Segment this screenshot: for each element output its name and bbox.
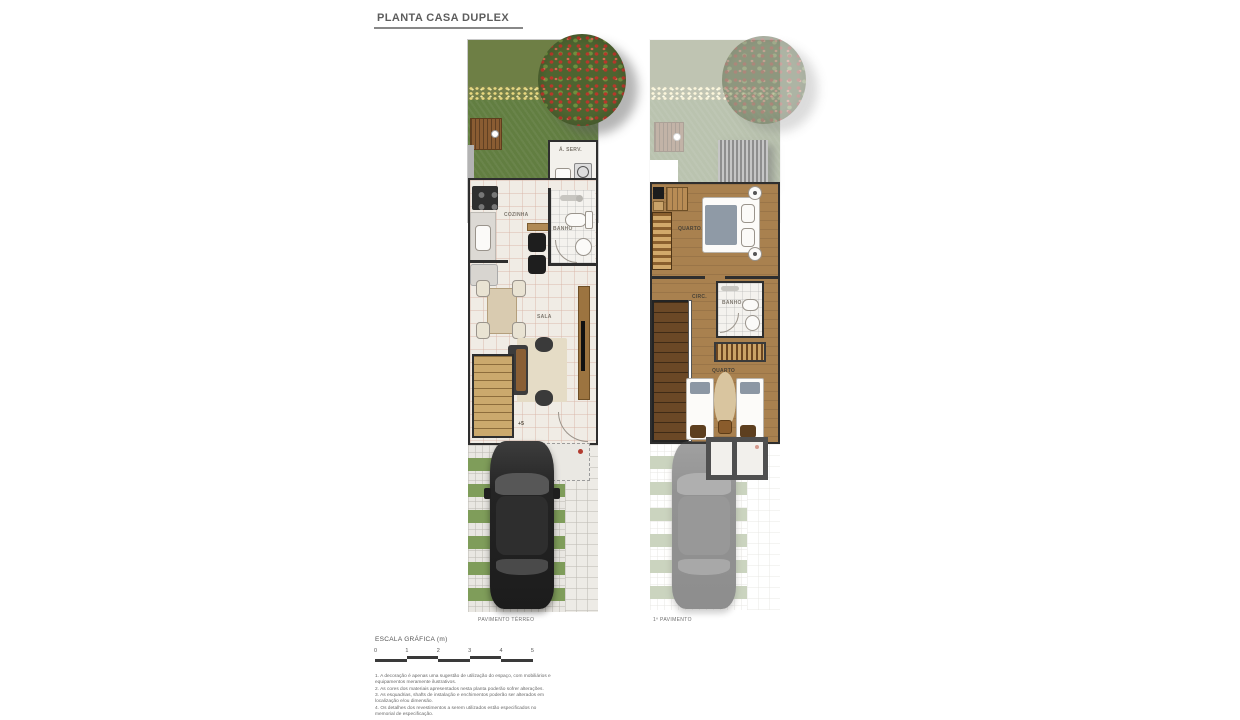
car bbox=[486, 436, 558, 616]
dining-chair-icon bbox=[512, 280, 526, 297]
pillow-icon bbox=[741, 204, 755, 223]
shower-icon bbox=[560, 195, 580, 201]
lamp-icon bbox=[753, 252, 757, 256]
car-rear-window bbox=[496, 559, 547, 576]
upper-floor-plan: QUARTO CIRC. BANHO QUARTO bbox=[650, 40, 780, 610]
pillow-icon bbox=[690, 382, 710, 394]
scale-bar-segment bbox=[375, 659, 407, 662]
dresser bbox=[653, 201, 664, 211]
scale-bar bbox=[375, 656, 533, 663]
car-roof bbox=[678, 496, 729, 555]
skylight-frames bbox=[706, 437, 768, 480]
ground-floor-plan: Á. SERV. COZINHA BANHO bbox=[468, 40, 598, 612]
note-line: 1. A decoração é apenas uma sugestão de … bbox=[375, 674, 555, 686]
service-area-label: Á. SERV. bbox=[559, 148, 582, 153]
armchair-icon bbox=[535, 337, 553, 352]
circulation-label: CIRC. bbox=[692, 295, 707, 300]
floor-plan-page: PLANTA CASA DUPLEX Á. SERV. bbox=[0, 0, 1240, 720]
bath-door-arc bbox=[720, 313, 739, 333]
deck-door-knob-icon bbox=[491, 130, 499, 138]
car-windshield bbox=[495, 473, 549, 495]
ground-floor-caption: PAVIMENTO TÉRREO bbox=[478, 618, 534, 623]
toilet-icon bbox=[742, 299, 759, 311]
upper-bathroom: BANHO bbox=[716, 281, 764, 338]
red-marker-dot bbox=[755, 445, 759, 449]
scale-tick: 1 bbox=[405, 648, 408, 654]
wood-deck bbox=[654, 122, 684, 152]
staircase-ground bbox=[472, 354, 514, 438]
bedroom1-label: QUARTO bbox=[678, 227, 701, 232]
upper-floor-caption: 1º PAVIMENTO bbox=[653, 618, 692, 623]
car-mirror-icon bbox=[553, 488, 560, 499]
toilet-tank-icon bbox=[585, 211, 593, 229]
tv-icon bbox=[581, 321, 585, 371]
bathroom-sink-icon bbox=[575, 238, 592, 256]
car-mirror-icon bbox=[484, 488, 491, 499]
tv-icon bbox=[653, 187, 664, 199]
bath-bottom-wall bbox=[548, 263, 598, 266]
car-rear-window bbox=[678, 559, 729, 576]
staircase-upper bbox=[652, 300, 690, 442]
bedroom1-wall bbox=[650, 276, 705, 279]
note-line: 4. Os detalhes dos revestimentos a serem… bbox=[375, 706, 555, 718]
tv-panel bbox=[578, 286, 590, 400]
shelf-ladder bbox=[652, 212, 672, 270]
shower-icon bbox=[721, 286, 739, 291]
toilet-icon bbox=[565, 213, 587, 227]
scale-tick: 4 bbox=[500, 648, 503, 654]
nightstand-icon bbox=[748, 186, 762, 200]
dining-chair-icon bbox=[512, 322, 526, 339]
pillow-icon bbox=[740, 382, 760, 394]
frame-divider bbox=[732, 442, 737, 475]
scale-tick: 5 bbox=[531, 648, 534, 654]
scale-ticks: 0 1 2 3 4 5 bbox=[374, 648, 534, 654]
scale-bar-segment bbox=[501, 659, 533, 662]
scale-bar-segment bbox=[438, 659, 470, 662]
dining-set bbox=[476, 278, 526, 342]
dining-chair-icon bbox=[476, 322, 490, 339]
lamp-icon bbox=[753, 191, 757, 195]
bedroom1-wall bbox=[725, 276, 780, 279]
note-line: 2. As cores dos materiais apresentados n… bbox=[375, 687, 555, 693]
dining-chair-icon bbox=[476, 280, 490, 297]
stool-icon bbox=[528, 255, 546, 274]
page-title: PLANTA CASA DUPLEX bbox=[374, 12, 523, 29]
sofa-cushions bbox=[516, 349, 526, 391]
scale-label: ESCALA GRÁFICA (m) bbox=[375, 636, 448, 643]
bathroom-sink-icon bbox=[745, 315, 760, 331]
deck-door-knob-icon bbox=[673, 133, 681, 141]
double-bed bbox=[702, 197, 760, 253]
scale-tick: 3 bbox=[468, 648, 471, 654]
kitchen-counter bbox=[470, 212, 496, 262]
washer-drum-icon bbox=[577, 166, 589, 178]
red-marker-dot bbox=[578, 449, 583, 454]
note-line: 3. As esquadrias, shafts de instalação e… bbox=[375, 693, 555, 705]
car-roof bbox=[496, 496, 547, 555]
scale-tick: 0 bbox=[374, 648, 377, 654]
wood-deck bbox=[470, 118, 502, 150]
living-label: SALA bbox=[537, 315, 552, 320]
kitchen-sink-icon bbox=[475, 225, 491, 251]
pillow-icon bbox=[741, 228, 755, 247]
armchair-icon bbox=[535, 390, 553, 406]
wardrobe bbox=[666, 187, 688, 211]
ghost-tree-icon bbox=[722, 36, 806, 124]
ground-bath-label: BANHO bbox=[553, 227, 573, 232]
tree-icon bbox=[538, 34, 626, 126]
scale-tick: 2 bbox=[437, 648, 440, 654]
stool-icon bbox=[528, 233, 546, 252]
kitchen-living-wall bbox=[468, 260, 508, 263]
bed-blanket bbox=[705, 205, 737, 245]
car-body bbox=[490, 441, 554, 609]
disclaimer-notes: 1. A decoração é apenas uma sugestão de … bbox=[375, 674, 555, 718]
scale-bar-segment bbox=[470, 656, 502, 659]
stove-icon bbox=[472, 186, 498, 210]
bedside-table bbox=[718, 420, 732, 434]
kitchen-label: COZINHA bbox=[504, 213, 529, 218]
shower-head-icon bbox=[576, 195, 583, 202]
nightstand-icon bbox=[748, 247, 762, 261]
pergola-roof bbox=[718, 140, 768, 186]
level-marker: +5 bbox=[518, 422, 524, 427]
scale-bar-segment bbox=[407, 656, 439, 659]
closet-slats bbox=[714, 342, 766, 362]
upper-bath-label: BANHO bbox=[722, 301, 742, 306]
